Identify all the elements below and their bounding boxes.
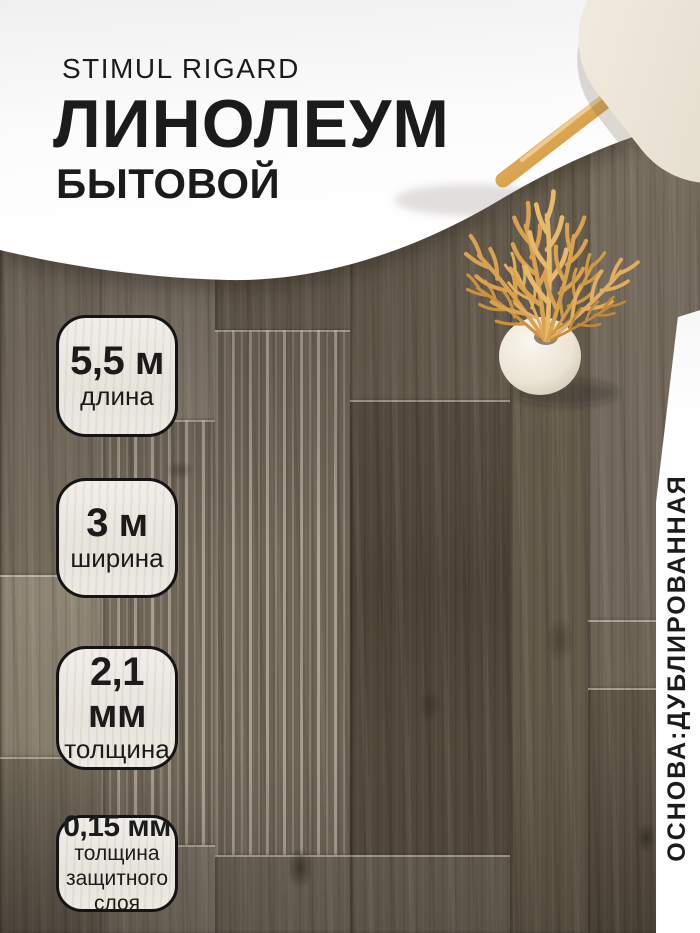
- badge-label: ширина: [70, 544, 163, 574]
- spec-badge-length: 5,5 м длина: [56, 315, 178, 437]
- product-subtitle: БЫТОВОЙ: [56, 163, 280, 205]
- spec-badge-thickness: 2,1 мм толщина: [56, 646, 178, 770]
- spec-badge-width: 3 м ширина: [56, 478, 178, 598]
- badge-label: защитного: [66, 867, 168, 892]
- badge-value: 3 м: [86, 502, 147, 544]
- spec-badge-protective-layer: 0,15 мм толщина защитного слоя: [56, 815, 178, 912]
- badge-label: слоя: [94, 892, 140, 917]
- badge-label: длина: [80, 382, 154, 412]
- badge-label: толщина: [74, 842, 159, 867]
- chair-leg-shadow: [395, 184, 545, 216]
- brand-name: STIMUL RIGARD: [62, 55, 300, 83]
- badge-label: толщина: [64, 735, 169, 765]
- badge-value: 2,1 мм: [59, 651, 175, 735]
- badge-value: 0,15 мм: [63, 811, 171, 843]
- vase-photo: [452, 192, 645, 406]
- product-image: STIMUL RIGARD ЛИНОЛЕУМ БЫТОВОЙ 5,5 м дли…: [0, 0, 700, 933]
- wheat-frond: [538, 246, 645, 351]
- badge-value: 5,5 м: [70, 340, 164, 382]
- product-title: ЛИНОЛЕУМ: [53, 90, 450, 158]
- base-banner-text: ОСНОВА:ДУБЛИРОВАННАЯ: [662, 453, 692, 883]
